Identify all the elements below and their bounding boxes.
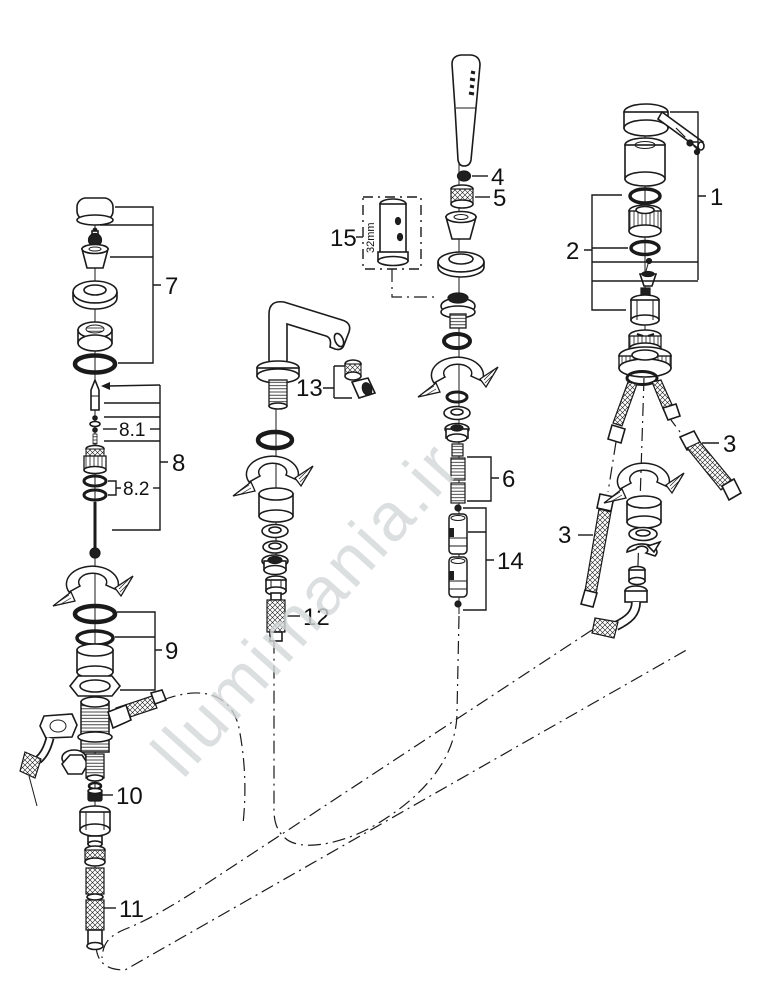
set-screw-d xyxy=(646,259,652,272)
label-8-1: 8.1 xyxy=(119,420,145,441)
flanged-nut-c xyxy=(445,424,469,443)
label-5: 5 xyxy=(493,185,506,212)
label-15: 15 xyxy=(330,225,357,252)
flanged-ring-c xyxy=(438,252,484,277)
label-6: 6 xyxy=(502,466,515,493)
oring-c2 xyxy=(447,392,467,402)
filter-part5 xyxy=(451,185,473,208)
check-valve-cartridge-14b xyxy=(449,557,467,597)
spout-adapter-13 xyxy=(345,360,375,398)
arrow-pin xyxy=(101,382,110,390)
check-valve-cartridge-14a xyxy=(449,514,467,554)
dome-escutcheon-c xyxy=(441,293,475,328)
small-nut-d xyxy=(629,567,645,585)
hand-shower xyxy=(452,55,480,166)
route-stub-to-hose xyxy=(608,442,616,492)
label-10: 10 xyxy=(116,783,143,810)
exploded-parts-diagram: 32mm xyxy=(0,0,775,1000)
spacer-cylinder-d xyxy=(627,496,661,528)
dimension-32mm: 32mm xyxy=(365,222,377,253)
label-14: 14 xyxy=(497,548,524,575)
compression-nut xyxy=(80,806,110,847)
cone-bushing xyxy=(82,245,108,269)
cartridge-8 xyxy=(84,446,106,474)
cap-part7 xyxy=(77,198,113,225)
oring-12 xyxy=(258,432,292,448)
washer-b2 xyxy=(263,541,287,553)
hose-fitting-11 xyxy=(85,846,105,866)
small-parts-8 xyxy=(90,416,100,444)
washer-d xyxy=(629,528,657,541)
flanged-nut-b xyxy=(262,555,288,575)
hose-stub-right xyxy=(652,380,680,420)
label-3-left: 3 xyxy=(558,522,571,549)
label-3-right: 3 xyxy=(723,431,736,458)
watermark-text: llumimania.ir xyxy=(137,427,475,790)
lift-rod xyxy=(90,502,100,558)
spacer-cylinder-9 xyxy=(77,644,113,678)
column-handle-left xyxy=(20,198,166,950)
oring-c1 xyxy=(444,334,470,348)
label-2: 2 xyxy=(566,238,579,265)
handle-sleeve xyxy=(625,138,665,186)
route-diagonal-upper xyxy=(102,630,592,958)
escutcheon-threaded xyxy=(78,322,112,351)
label-7: 7 xyxy=(165,273,178,300)
dot-14-bottom xyxy=(455,601,461,607)
cartridge-nut xyxy=(629,205,661,237)
flex-hose-11 xyxy=(86,868,104,950)
label-13: 13 xyxy=(296,375,323,402)
cartridge-d xyxy=(631,288,659,325)
elbow-hose-d xyxy=(592,586,647,638)
label-11: 11 xyxy=(119,896,144,923)
washer-part4 xyxy=(458,171,471,181)
tool-box-15: 32mm xyxy=(363,197,438,297)
label-9: 9 xyxy=(165,638,178,665)
washer-c xyxy=(444,407,470,420)
label-8: 8 xyxy=(172,450,185,477)
valve-pin xyxy=(91,380,99,410)
hose-stub-left xyxy=(608,382,637,443)
hex-plug xyxy=(62,750,88,774)
half-moon-clip xyxy=(627,542,660,556)
socket-tool-32mm xyxy=(378,199,408,266)
leaf-escutcheon-a xyxy=(53,566,133,606)
spacer-cylinder-b xyxy=(259,488,293,522)
hex-nut-9 xyxy=(70,676,120,696)
thread-stub-c xyxy=(452,444,463,456)
label-8-2: 8.2 xyxy=(123,479,149,500)
seal-part10 xyxy=(88,789,102,802)
diagram-canvas: 32mm xyxy=(0,0,775,1000)
cone-bit-d xyxy=(640,272,656,287)
flex-hose-3-left xyxy=(581,494,614,607)
flanged-ring xyxy=(73,281,117,309)
dot-14-top xyxy=(455,505,461,511)
washer-b1 xyxy=(262,525,288,538)
label-1: 1 xyxy=(710,184,723,211)
cone-sleeve-c xyxy=(446,212,476,240)
